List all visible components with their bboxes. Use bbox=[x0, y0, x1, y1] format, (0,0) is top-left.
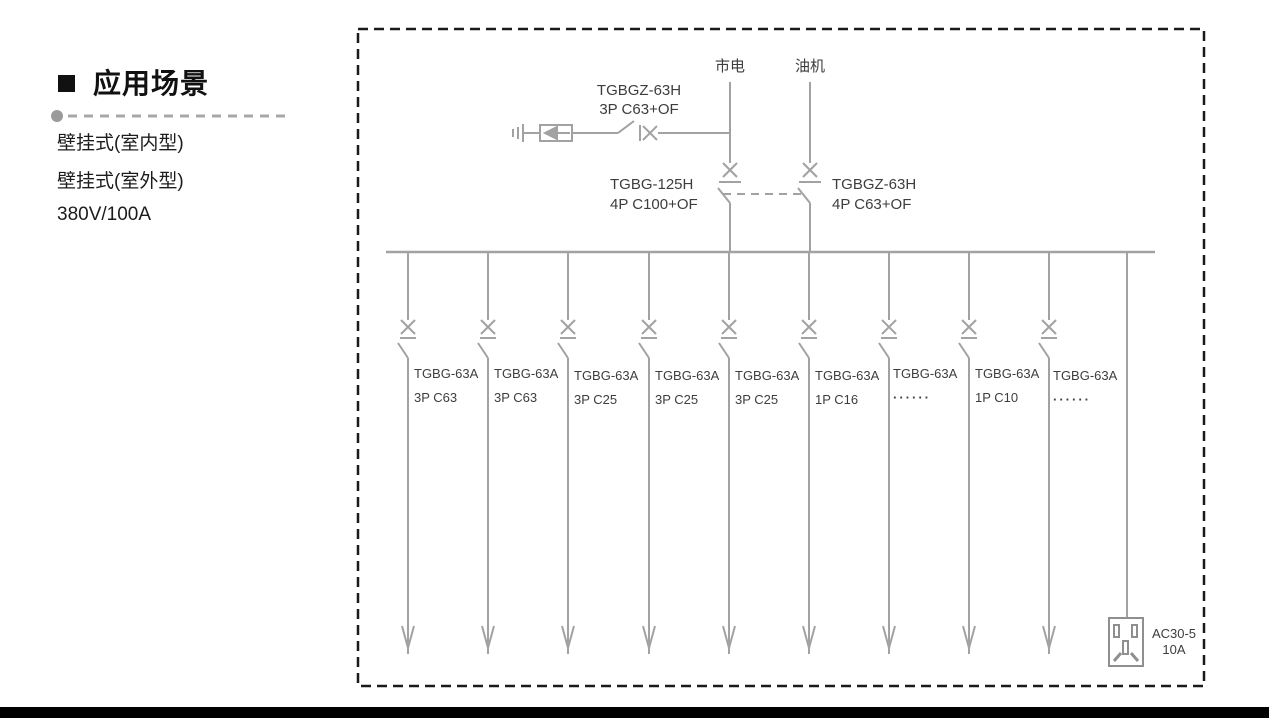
spd-breaker-model: TGBGZ-63H bbox=[569, 81, 709, 100]
generator-breaker-rating: 4P C63+OF bbox=[832, 195, 911, 214]
feeder-rating-3: 3P C25 bbox=[574, 392, 617, 408]
feeder-rating-2: 3P C63 bbox=[494, 390, 537, 406]
feeder-rating-7: ······ bbox=[893, 390, 931, 405]
feeder-model-8: TGBG-63A bbox=[975, 366, 1039, 382]
feeder-rating-8: 1P C10 bbox=[975, 390, 1018, 406]
feeder-model-1: TGBG-63A bbox=[414, 366, 478, 382]
mains-breaker-model: TGBG-125H bbox=[610, 175, 693, 194]
feeder-rating-9: ······ bbox=[1053, 392, 1091, 407]
mains-breaker-symbol bbox=[718, 82, 741, 252]
feeder-model-6: TGBG-63A bbox=[815, 368, 879, 384]
feeder-rating-1: 3P C63 bbox=[414, 390, 457, 406]
generator-breaker-model: TGBGZ-63H bbox=[832, 175, 916, 194]
feeder-model-4: TGBG-63A bbox=[655, 368, 719, 384]
feeder-rating-5: 3P C25 bbox=[735, 392, 778, 408]
socket-icon bbox=[1109, 618, 1143, 666]
spd-breaker-blade bbox=[618, 121, 634, 133]
feeder-symbol-5 bbox=[719, 252, 737, 654]
bottom-accent-bar bbox=[0, 707, 1269, 718]
feeder-model-7: TGBG-63A bbox=[893, 366, 957, 382]
spd-branch bbox=[513, 121, 729, 142]
feeder-rating-4: 3P C25 bbox=[655, 392, 698, 408]
feeder-symbol-2 bbox=[478, 252, 496, 654]
feeder-symbol-3 bbox=[558, 252, 576, 654]
feeder-model-5: TGBG-63A bbox=[735, 368, 799, 384]
socket-model: AC30-5 bbox=[1147, 626, 1201, 642]
generator-breaker-symbol bbox=[798, 82, 821, 252]
feeder-symbol-1 bbox=[398, 252, 416, 654]
feeder-symbol-7 bbox=[879, 252, 897, 654]
source-label-generator: 油机 bbox=[782, 57, 838, 76]
feeder-symbol-6 bbox=[799, 252, 817, 654]
source-label-mains: 市电 bbox=[702, 57, 758, 76]
feeder-model-2: TGBG-63A bbox=[494, 366, 558, 382]
feeder-model-9: TGBG-63A bbox=[1053, 368, 1117, 384]
feeder-symbol-9 bbox=[1039, 252, 1057, 654]
feeder-model-3: TGBG-63A bbox=[574, 368, 638, 384]
page: 应用场景 壁挂式(室内型) 壁挂式(室外型) 380V/100A bbox=[0, 0, 1269, 721]
socket-rating: 10A bbox=[1147, 642, 1201, 658]
spd-breaker-rating: 3P C63+OF bbox=[569, 100, 709, 119]
feeder-rating-6: 1P C16 bbox=[815, 392, 858, 408]
feeder-symbol-4 bbox=[639, 252, 657, 654]
enclosure-dashed-border bbox=[358, 29, 1204, 686]
mains-breaker-rating: 4P C100+OF bbox=[610, 195, 698, 214]
feeder-symbol-8 bbox=[959, 252, 977, 654]
